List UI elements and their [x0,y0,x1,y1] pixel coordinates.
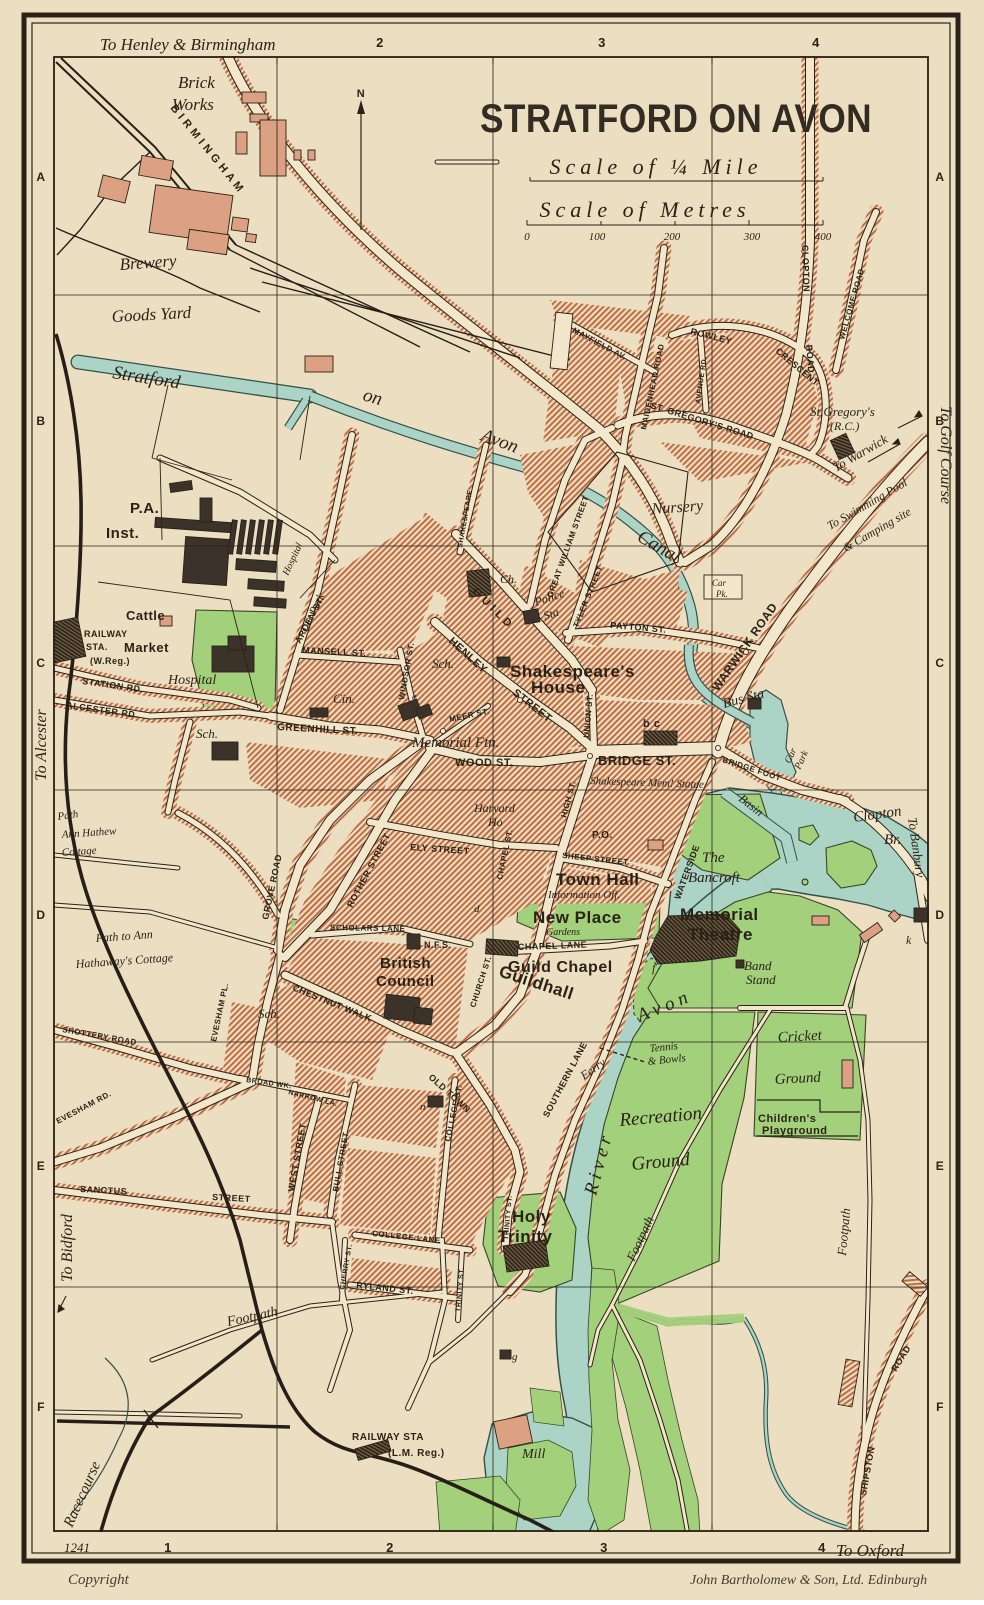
svg-text:2: 2 [386,1540,394,1555]
svg-text:Memorial Ftn.: Memorial Ftn. [411,735,500,751]
svg-text:Ground: Ground [774,1070,821,1088]
svg-text:3: 3 [600,1540,608,1555]
svg-text:Copyright: Copyright [68,1572,130,1588]
svg-text:SCHOLARS LANE: SCHOLARS LANE [330,923,406,933]
svg-text:Scale of ¼ Mile: Scale of ¼ Mile [549,154,762,179]
svg-text:n: n [420,1101,426,1113]
svg-text:C: C [36,656,45,670]
svg-text:A: A [935,170,944,184]
svg-text:STREET: STREET [212,1192,251,1204]
svg-text:d: d [474,903,480,915]
svg-text:4: 4 [812,35,820,50]
svg-text:Ho: Ho [487,815,503,829]
svg-text:New Place: New Place [533,908,622,927]
svg-text:Children's: Children's [758,1113,816,1125]
svg-text:St.Gregory's: St.Gregory's [810,404,875,419]
svg-text:P.O.: P.O. [592,830,613,841]
svg-text:Ch.: Ch. [500,572,517,586]
svg-text:Pk.: Pk. [715,589,728,599]
svg-text:200: 200 [664,231,681,243]
svg-text:100: 100 [589,231,606,243]
svg-text:C: C [935,656,944,670]
svg-text:D: D [36,908,45,922]
svg-text:(W.Reg.): (W.Reg.) [90,656,130,666]
svg-text:Playground: Playground [762,1125,828,1137]
svg-text:STA.: STA. [86,642,108,652]
svg-text:(R.C.): (R.C.) [830,419,859,433]
svg-text:John Bartholomew & Son, Ltd. E: John Bartholomew & Son, Ltd. Edinburgh [690,1573,927,1588]
svg-text:Bancroft: Bancroft [688,870,741,886]
svg-text:2: 2 [376,35,384,50]
svg-text:Inst.: Inst. [106,525,139,542]
svg-text:3: 3 [598,35,606,50]
svg-text:Sch.: Sch. [258,1006,280,1021]
svg-text:A: A [36,170,45,184]
svg-text:Cricket: Cricket [777,1028,823,1046]
svg-text:D: D [935,908,944,922]
svg-text:STRATFORD ON AVON: STRATFORD ON AVON [480,97,872,141]
svg-text:Memorial: Memorial [680,905,759,924]
svg-text:N: N [357,88,365,100]
svg-text:Car: Car [712,578,727,588]
svg-text:CLOPTON: CLOPTON [800,245,812,293]
svg-text:N.F.S.: N.F.S. [424,940,452,950]
svg-text:B: B [36,414,45,428]
svg-text:Sch.: Sch. [196,726,218,741]
svg-text:Gardens: Gardens [546,927,580,938]
svg-text:Band: Band [744,958,772,973]
svg-text:400: 400 [815,231,832,243]
svg-text:Cattle: Cattle [126,608,165,623]
svg-text:0: 0 [524,231,530,243]
svg-text:To Golf Course: To Golf Course [937,406,954,504]
svg-text:Harvard: Harvard [473,801,516,815]
svg-text:WOOD ST.: WOOD ST. [455,757,513,769]
svg-text:House: House [531,678,585,697]
svg-text:Br.: Br. [884,832,901,848]
svg-text:RAILWAY: RAILWAY [84,629,128,639]
svg-text:Theatre: Theatre [688,925,753,944]
svg-text:Mill: Mill [521,1447,545,1462]
svg-text:k: k [906,933,912,947]
svg-text:b c: b c [643,718,660,730]
svg-text:F: F [936,1400,944,1414]
svg-text:F: F [37,1400,45,1414]
svg-text:(L.M. Reg.): (L.M. Reg.) [388,1448,445,1459]
svg-text:RAILWAY STA: RAILWAY STA [352,1432,424,1443]
svg-text:To Bidford: To Bidford [59,1213,76,1282]
svg-text:Brewery: Brewery [119,251,178,274]
svg-text:To Oxford: To Oxford [836,1541,905,1560]
svg-text:Information Off.: Information Off. [547,889,620,901]
svg-text:BRIDGE ST.: BRIDGE ST. [598,753,676,768]
svg-text:g: g [512,1351,518,1363]
svg-text:Sch.: Sch. [432,656,454,671]
svg-text:To Alcester: To Alcester [33,708,50,780]
svg-text:Trinity: Trinity [498,1227,553,1246]
svg-text:British: British [380,955,431,972]
svg-text:Market: Market [124,640,169,655]
svg-text:e: e [412,692,417,703]
svg-text:300: 300 [743,231,761,243]
svg-text:Cin.: Cin. [333,691,355,706]
svg-text:To Henley & Birmingham: To Henley & Birmingham [100,35,276,54]
svg-text:4: 4 [818,1540,826,1555]
svg-text:Cottage: Cottage [61,845,97,859]
svg-text:Holy: Holy [512,1207,551,1226]
svg-text:Brick: Brick [178,73,215,92]
svg-text:Town Hall: Town Hall [556,870,640,889]
svg-text:Stand: Stand [746,972,776,987]
svg-text:Hospital: Hospital [167,673,216,688]
svg-text:E: E [37,1159,46,1173]
svg-text:P.A.: P.A. [130,500,159,517]
svg-text:1241: 1241 [64,1540,90,1555]
svg-text:Scale of Metres: Scale of Metres [539,197,750,222]
svg-text:E: E [936,1159,945,1173]
svg-text:Council: Council [376,973,435,990]
svg-text:The: The [702,850,725,866]
svg-text:1: 1 [164,1540,172,1555]
